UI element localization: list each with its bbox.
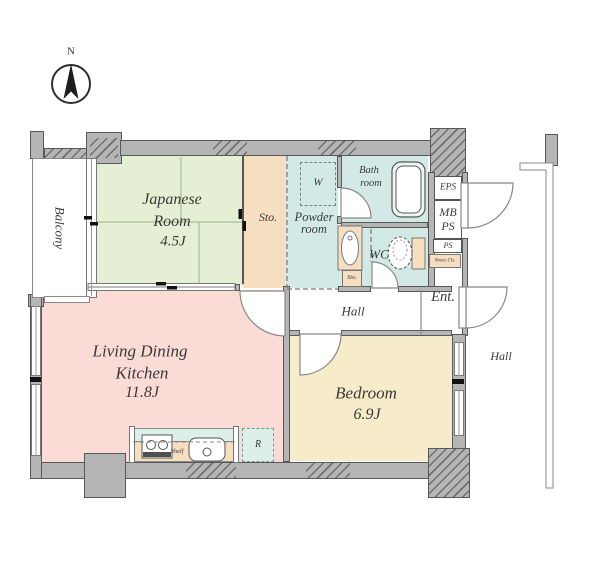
meterbox-door-arc	[468, 183, 513, 228]
window-bedroom-right-2	[454, 390, 464, 436]
wall-bottom-hatch-1	[186, 463, 236, 478]
japanese-room-size: 4.5J	[160, 235, 185, 250]
pillar-top-right	[430, 128, 466, 178]
entrance-door-arc	[466, 287, 507, 328]
mb-label-2: PS	[441, 220, 454, 232]
wall-top-left-block	[30, 131, 44, 159]
washer-label: W	[313, 178, 322, 189]
outer-hall-label: Hall	[490, 350, 511, 362]
shoes-closet-label: Shoes Cls.	[435, 259, 456, 264]
hall-label: Hall	[341, 305, 364, 318]
shelf-label: Shelf	[171, 449, 184, 456]
japanese-room-label-2: Room	[153, 214, 190, 230]
wall-bedroom-top-2	[341, 330, 452, 336]
wall-japanese-ldk-right	[235, 284, 240, 291]
room-bath	[341, 156, 428, 222]
pillar-bottom-right	[428, 448, 470, 498]
entrance-label: Ent.	[431, 290, 455, 305]
wall-right-ps	[462, 238, 468, 288]
wall-top-hatch-2	[318, 141, 356, 155]
bedroom-label: Bedroom	[335, 385, 397, 402]
japanese-room-label-1: Japanese	[142, 192, 202, 208]
ldk-size-label: 11.8J	[125, 385, 159, 401]
storage-label: Sto.	[259, 211, 277, 223]
storage-small-label: Sto.	[347, 275, 357, 282]
wall-bath-left-top	[337, 156, 342, 188]
entrance-door-leaf	[459, 287, 466, 328]
meterbox-door-leaf	[461, 183, 468, 228]
balcony-label: Balcony	[54, 207, 67, 250]
ldk-label-2: Kitchen	[116, 365, 169, 382]
wall-right-jamb-top	[462, 172, 468, 184]
corridor-wall-block	[545, 134, 558, 166]
balcony-window	[86, 158, 97, 298]
kitchen-stub-left	[129, 426, 135, 463]
kitchen-counter-top	[133, 428, 236, 442]
bath-room-label-1: Bath	[359, 166, 379, 177]
eps-label: EPS	[440, 183, 456, 193]
pillar-bottom-left	[84, 453, 126, 498]
powder-room-label-2: room	[301, 223, 327, 236]
floor-plan: N Balcony Japanese Room 4.5J Sto. W Powd…	[0, 0, 600, 586]
mb-label-1: MB	[439, 206, 456, 218]
compass-north-label: N	[67, 47, 75, 58]
wall-top-hatch-1	[213, 141, 247, 155]
wall-ldk-bedroom	[283, 286, 290, 462]
window-bedroom-right-1	[454, 342, 464, 376]
balcony-end-rail	[44, 296, 90, 303]
bedroom-size-label: 6.9J	[353, 407, 380, 423]
wall-bottom-hatch-2	[306, 463, 350, 478]
pillar-top-hatch	[90, 138, 118, 158]
ldk-label-1: Living Dining	[93, 343, 188, 360]
window-ldk-left-1	[31, 306, 41, 376]
wall-bath-bottom	[341, 222, 428, 228]
kitchen-counter-base	[133, 442, 236, 462]
wc-label: WC	[369, 248, 389, 261]
compass-icon	[52, 64, 90, 103]
kitchen-stub-right	[233, 426, 239, 463]
refrigerator-label: R	[255, 440, 261, 450]
wall-top	[120, 140, 433, 156]
outer-hall-corridor	[520, 163, 553, 488]
bath-room-label-2: room	[360, 179, 382, 190]
ps-label: PS	[444, 242, 453, 250]
window-ldk-left-2	[31, 384, 41, 456]
